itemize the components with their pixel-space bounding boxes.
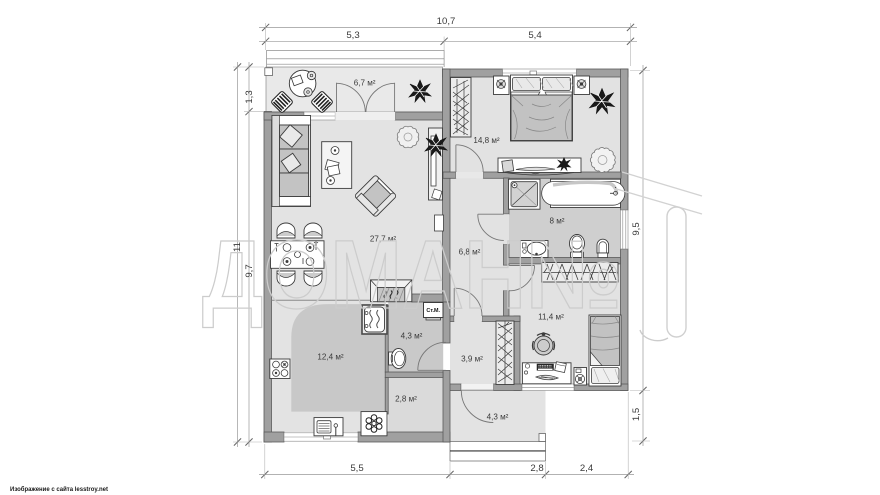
- svg-text:12,4 м²: 12,4 м²: [317, 353, 344, 362]
- svg-text:1,3: 1,3: [244, 90, 255, 103]
- svg-text:Изображение с сайта lesstroy.n: Изображение с сайта lesstroy.net: [10, 486, 108, 493]
- svg-text:9,5: 9,5: [631, 222, 642, 235]
- svg-text:4,3 м²: 4,3 м²: [487, 413, 509, 422]
- svg-text:14,8 м²: 14,8 м²: [473, 136, 500, 145]
- svg-text:1,5: 1,5: [631, 408, 642, 421]
- svg-text:ДОМАН№: ДОМАН№: [202, 220, 622, 329]
- svg-text:2,8 м²: 2,8 м²: [395, 395, 417, 404]
- svg-text:6,7 м²: 6,7 м²: [354, 79, 376, 88]
- svg-text:10,7: 10,7: [437, 16, 456, 27]
- svg-text:5,3: 5,3: [346, 30, 359, 41]
- svg-text:3,9 м²: 3,9 м²: [461, 355, 483, 364]
- svg-text:5,5: 5,5: [350, 463, 363, 474]
- svg-text:5,4: 5,4: [528, 30, 542, 41]
- svg-text:4,3 м²: 4,3 м²: [401, 332, 423, 341]
- svg-text:2,8: 2,8: [530, 463, 543, 474]
- svg-text:2,4: 2,4: [580, 463, 594, 474]
